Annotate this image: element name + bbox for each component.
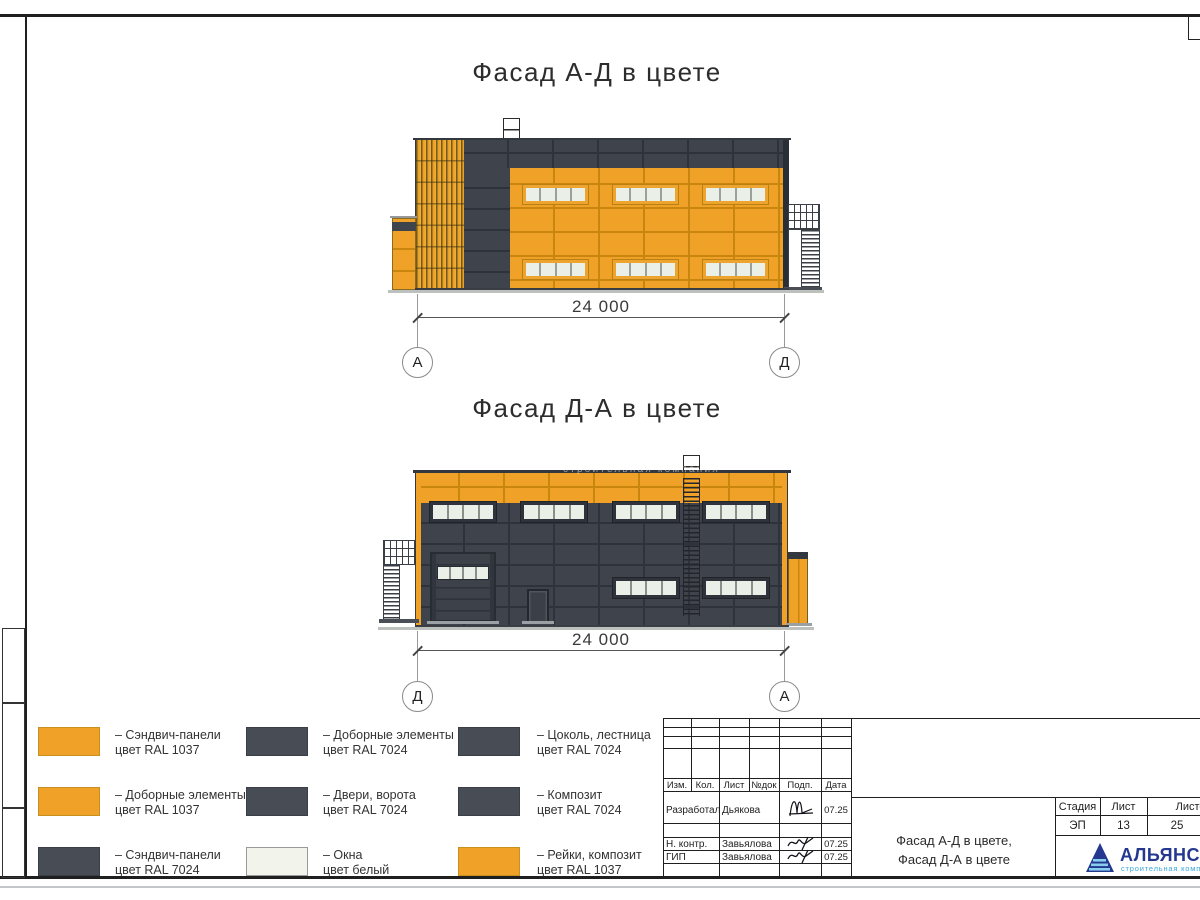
window-pane <box>526 263 539 276</box>
stage-header: Стадия <box>1055 801 1100 813</box>
facade1-dark-section <box>464 168 510 290</box>
axis-label: А <box>779 688 789 705</box>
facade1-window <box>703 260 768 279</box>
titleblock-name: Завьялова <box>722 839 772 850</box>
titleblock-name: Завьялова <box>722 852 772 863</box>
window-pane <box>632 505 646 519</box>
axis-label: Д <box>412 688 422 705</box>
titleblock-hline <box>663 837 851 838</box>
titleblock-col-data: Дата <box>821 780 851 791</box>
stage-header: Листов <box>1147 801 1200 813</box>
window-pane <box>557 263 570 276</box>
window-pane <box>752 263 765 276</box>
titleblock-hline <box>663 736 851 737</box>
window-pane <box>752 188 765 201</box>
legend-swatch <box>458 787 520 816</box>
titleblock-vline <box>779 718 780 877</box>
facade2-axis-left: Д <box>402 681 433 712</box>
titleblock-col-podp: Подп. <box>779 780 821 791</box>
window-pane <box>526 188 539 201</box>
titleblock-hline <box>663 823 851 824</box>
legend-label: – Доборные элементыцвет RAL 7024 <box>323 728 454 758</box>
legend-swatch <box>246 847 308 876</box>
facade2-annex-band <box>788 552 808 559</box>
facade2-annex <box>788 552 808 625</box>
window-pane <box>541 263 554 276</box>
facade2-stair-side <box>399 564 416 623</box>
legend-label: – Сэндвич-панелицвет RAL 1037 <box>115 728 221 758</box>
window-pane <box>557 188 570 201</box>
window-pane <box>753 505 767 519</box>
facade2-fire-ladder <box>683 478 700 616</box>
facade2-window <box>703 578 769 598</box>
facade1-title: Фасад А-Д в цвете <box>347 57 847 88</box>
titleblock-hline <box>1055 815 1200 816</box>
window-pane <box>616 505 630 519</box>
window-pane <box>737 505 751 519</box>
legend-label: – Композитцвет RAL 7024 <box>537 788 622 818</box>
facade1-window <box>523 260 588 279</box>
facade2-window <box>521 502 587 522</box>
window-pane <box>647 505 661 519</box>
paper-edge-line <box>0 886 1200 888</box>
window-pane <box>616 188 629 201</box>
window-pane <box>721 263 734 276</box>
facade1-window <box>703 185 768 204</box>
facade2-stair-base <box>379 619 419 623</box>
doc-title-line1: Фасад А-Д в цвете, <box>896 831 1012 850</box>
facade2-door-sill <box>522 621 554 624</box>
facade1-window <box>613 185 678 204</box>
window-pane <box>616 581 630 595</box>
facade2-annex-base <box>786 623 812 626</box>
window-pane <box>464 505 478 519</box>
titleblock-role: Разработал <box>666 805 720 816</box>
frame-left-line <box>25 14 27 878</box>
window-pane <box>572 188 585 201</box>
window-pane <box>706 581 720 595</box>
window-pane <box>572 263 585 276</box>
facade2-title: Фасад Д-А в цвете <box>347 393 847 424</box>
window-pane <box>433 505 447 519</box>
titleblock-hline <box>663 850 851 851</box>
axis-label: Д <box>779 354 789 371</box>
legend-label: – Окнацвет белый <box>323 848 389 878</box>
doc-title-cell: Фасад А-Д в цвете, Фасад Д-А в цвете <box>853 798 1055 877</box>
legend-swatch <box>38 727 100 756</box>
window-pane <box>706 188 719 201</box>
company-logo-subtitle: строительная компания <box>1121 864 1200 873</box>
titleblock-role: Н. контр. <box>666 839 707 850</box>
company-logo-name: АЛЬЯНС <box>1120 845 1200 866</box>
window-pane <box>555 505 569 519</box>
facade2-window <box>430 502 496 522</box>
facade1-axis-left: А <box>402 347 433 378</box>
window-pane <box>632 581 646 595</box>
facade2-watermark: строительная компания <box>563 464 913 475</box>
window-pane <box>647 188 660 201</box>
titleblock-col-izm: Изм. <box>663 780 691 791</box>
window-pane <box>449 505 463 519</box>
window-pane <box>480 505 494 519</box>
window-pane <box>662 263 675 276</box>
window-pane <box>722 505 736 519</box>
facade1-dimension-line <box>417 317 785 318</box>
facade1-stair-railing <box>788 204 820 229</box>
stage-value: 25 <box>1147 820 1200 832</box>
legend-swatch <box>246 727 308 756</box>
titleblock-col-list: Лист <box>719 780 749 791</box>
facade1-window <box>613 260 678 279</box>
doc-title-line2: Фасад Д-А в цвете <box>898 850 1010 869</box>
axis-label: А <box>412 354 422 371</box>
window-pane <box>737 263 750 276</box>
window-pane <box>464 567 475 579</box>
facade2-window <box>703 502 769 522</box>
window-pane <box>541 188 554 201</box>
margin-box-1 <box>2 628 25 703</box>
facade1-stair-ladder <box>801 229 820 291</box>
window-pane <box>647 263 660 276</box>
window-pane <box>737 581 751 595</box>
titleblock-left <box>663 718 664 877</box>
window-pane <box>571 505 585 519</box>
window-pane <box>706 505 720 519</box>
titleblock-name: Дьякова <box>722 805 760 816</box>
facade2-dimension-text: 24 000 <box>417 630 785 650</box>
titleblock-date: 07.25 <box>821 839 851 850</box>
facade1-dimension-text: 24 000 <box>417 297 785 317</box>
legend-label: – Рейки, композитцвет RAL 1037 <box>537 848 642 878</box>
legend-label: – Двери, воротацвет RAL 7024 <box>323 788 416 818</box>
window-pane <box>753 581 767 595</box>
facade1-ground-line <box>388 290 824 293</box>
facade1-window <box>523 185 588 204</box>
facade2-gate-window <box>437 566 489 580</box>
window-pane <box>722 581 736 595</box>
titleblock-hline <box>663 727 851 728</box>
legend-label: – Сэндвич-панелицвет RAL 7024 <box>115 848 221 878</box>
stage-value: ЭП <box>1055 820 1100 832</box>
window-pane <box>706 263 719 276</box>
legend-swatch <box>38 787 100 816</box>
titleblock-col-kol: Кол. <box>691 780 719 791</box>
legend-swatch <box>38 847 100 876</box>
legend-swatch <box>458 727 520 756</box>
signature <box>786 794 816 820</box>
titleblock-hline <box>663 748 851 749</box>
window-pane <box>540 505 554 519</box>
window-pane <box>631 188 644 201</box>
facade2-stair-railing <box>383 540 416 564</box>
titleblock-hline <box>663 778 851 779</box>
window-pane <box>662 188 675 201</box>
facade1-axis-right: Д <box>769 347 800 378</box>
facade1-annex-band <box>392 222 416 231</box>
titleblock-hline <box>1055 835 1200 836</box>
window-pane <box>451 567 462 579</box>
legend-swatch <box>246 787 308 816</box>
legend-label: – Цоколь, лестницацвет RAL 7024 <box>537 728 651 758</box>
window-pane <box>616 263 629 276</box>
facade2-gate <box>430 552 496 622</box>
stage-value: 13 <box>1100 820 1147 832</box>
legend-label: – Доборные элементыцвет RAL 1037 <box>115 788 246 818</box>
margin-box-2 <box>2 703 25 808</box>
facade2-door <box>527 589 549 623</box>
frame-top-line <box>0 14 1200 17</box>
window-pane <box>524 505 538 519</box>
titleblock-col-ndok: №док <box>749 780 779 791</box>
titleblock-date: 07.25 <box>821 805 851 816</box>
signature <box>786 849 816 864</box>
titleblock-role: ГИП <box>666 852 686 863</box>
window-pane <box>631 263 644 276</box>
titleblock-hline <box>663 791 851 792</box>
margin-box-3 <box>2 808 25 878</box>
window-pane <box>647 581 661 595</box>
window-pane <box>663 505 677 519</box>
facade2-dimension-line <box>417 650 785 651</box>
window-pane <box>663 581 677 595</box>
titleblock-hline <box>663 863 851 864</box>
window-pane <box>477 567 488 579</box>
facade2-axis-right: А <box>769 681 800 712</box>
window-pane <box>721 188 734 201</box>
window-pane <box>737 188 750 201</box>
titleblock-date: 07.25 <box>821 852 851 863</box>
facade2-top-band <box>415 473 788 503</box>
facade2-window <box>613 578 679 598</box>
stage-header: Лист <box>1100 801 1147 813</box>
facade1-orange-slats <box>415 140 464 290</box>
window-pane <box>438 567 449 579</box>
company-logo-icon <box>1085 842 1115 874</box>
titleblock-vline <box>719 718 720 877</box>
facade1-top-band <box>464 140 789 168</box>
legend-swatch <box>458 847 520 876</box>
drawing-sheet: Фасад А-Д в цвете 24 000 А Д Фасад Д- <box>0 0 1200 900</box>
facade2-gate-sill <box>427 621 499 624</box>
frame-corner-box <box>1188 16 1200 40</box>
facade2-window <box>613 502 679 522</box>
titleblock-top <box>663 718 1200 719</box>
